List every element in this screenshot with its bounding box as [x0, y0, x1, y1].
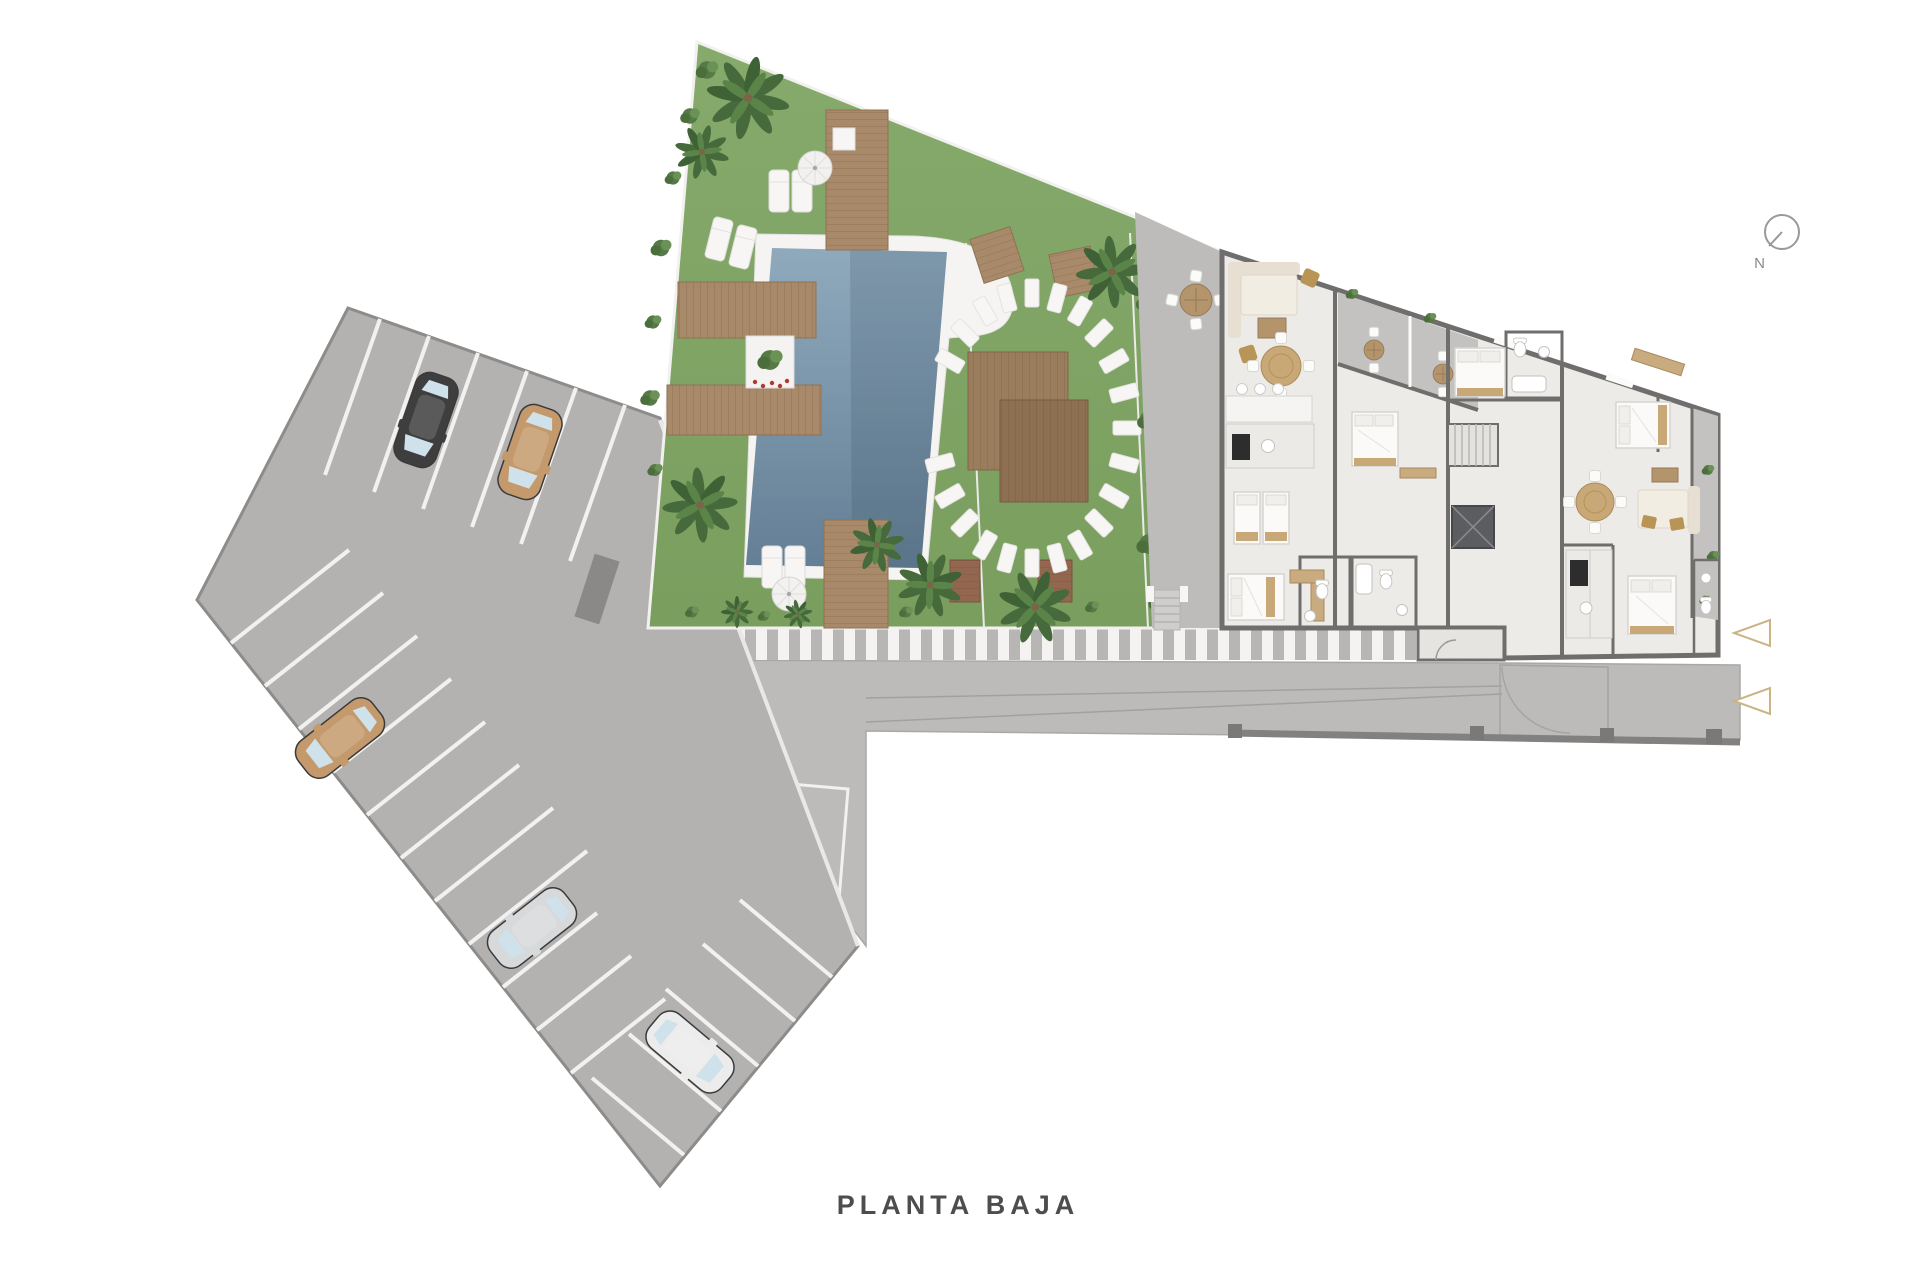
apartment-building — [1222, 252, 1719, 660]
compass-north-icon: N — [1754, 215, 1799, 272]
kitchen-D — [1566, 550, 1612, 638]
bedroom-D-bottom — [1628, 576, 1676, 634]
plan-title: PLANTA BAJA — [837, 1190, 1080, 1220]
parasol-icon — [798, 151, 832, 185]
deck-strip-top — [826, 110, 888, 250]
striped-walkway — [646, 629, 1418, 660]
kitchen-A — [1226, 384, 1314, 469]
planter-box — [746, 336, 794, 388]
entrance-lobby — [1418, 628, 1504, 660]
deck-strip-left-2 — [667, 385, 821, 435]
compass-north-label: N — [1754, 255, 1766, 272]
site-plan-drawing: N PLANTA BAJA — [0, 0, 1920, 1280]
stair-core — [1448, 424, 1498, 466]
elevator — [1452, 506, 1494, 548]
triangle-left-arrow-icon — [1734, 620, 1770, 646]
bedroom-C — [1455, 348, 1505, 396]
deck-strip-left-1 — [678, 282, 816, 338]
site-plan-page: N PLANTA BAJA — [0, 0, 1920, 1280]
garden — [640, 42, 1222, 655]
deck-table — [833, 128, 855, 150]
